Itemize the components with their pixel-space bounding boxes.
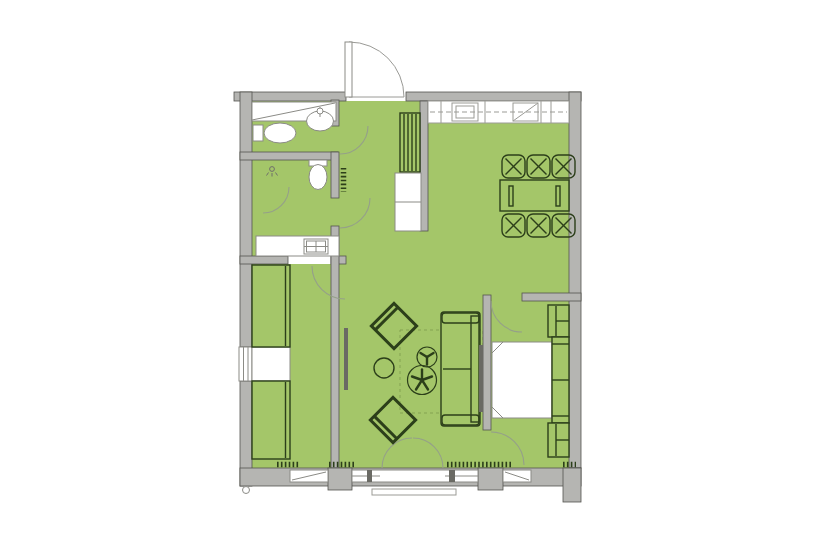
entry-door-swing [349,42,404,97]
closet-icon [252,265,290,347]
floor-plan-canvas [0,0,833,555]
wall-top-right [406,92,581,101]
window-mullion [367,470,372,482]
wall-left-upper [240,92,252,347]
tv-panel-icon [479,345,483,412]
tv-panel-icon [344,328,348,390]
sofa-icon [441,312,480,426]
nightstand-icon [548,305,569,337]
wall-bathroom-divider [240,152,338,160]
kitchen [428,101,569,123]
double-bed-icon [492,337,569,423]
survey-marker-icon [243,487,250,494]
closet-icon [252,381,290,459]
toilet-tank [253,125,263,141]
window-left-wall [239,347,252,381]
toilet-icon [309,165,327,190]
window-niche [252,347,290,381]
entry-door-icon [345,42,404,97]
hall-shelf-icon [400,113,420,172]
bed-mattress [492,342,552,418]
toilet-icon [264,123,296,143]
wall-bedroom-top [522,293,581,301]
wall-bottom-right-step [563,468,581,502]
wall-right [569,92,581,468]
balcony-edge [372,489,456,495]
floor-plan-page [0,0,833,555]
wall-window-pier-1 [328,468,352,490]
wall-bath-partition-c [331,226,339,468]
nightstand-icon [548,423,569,457]
washbasin-tap-knob [317,108,323,114]
entry-door-leaf [345,42,352,97]
wall-bedroom-top-left [240,256,288,264]
window-mullion [449,470,455,482]
wall-bath-partition-b [331,152,339,198]
wall-bedroom-partition [483,295,491,430]
wall-window-pier-2 [478,468,503,490]
